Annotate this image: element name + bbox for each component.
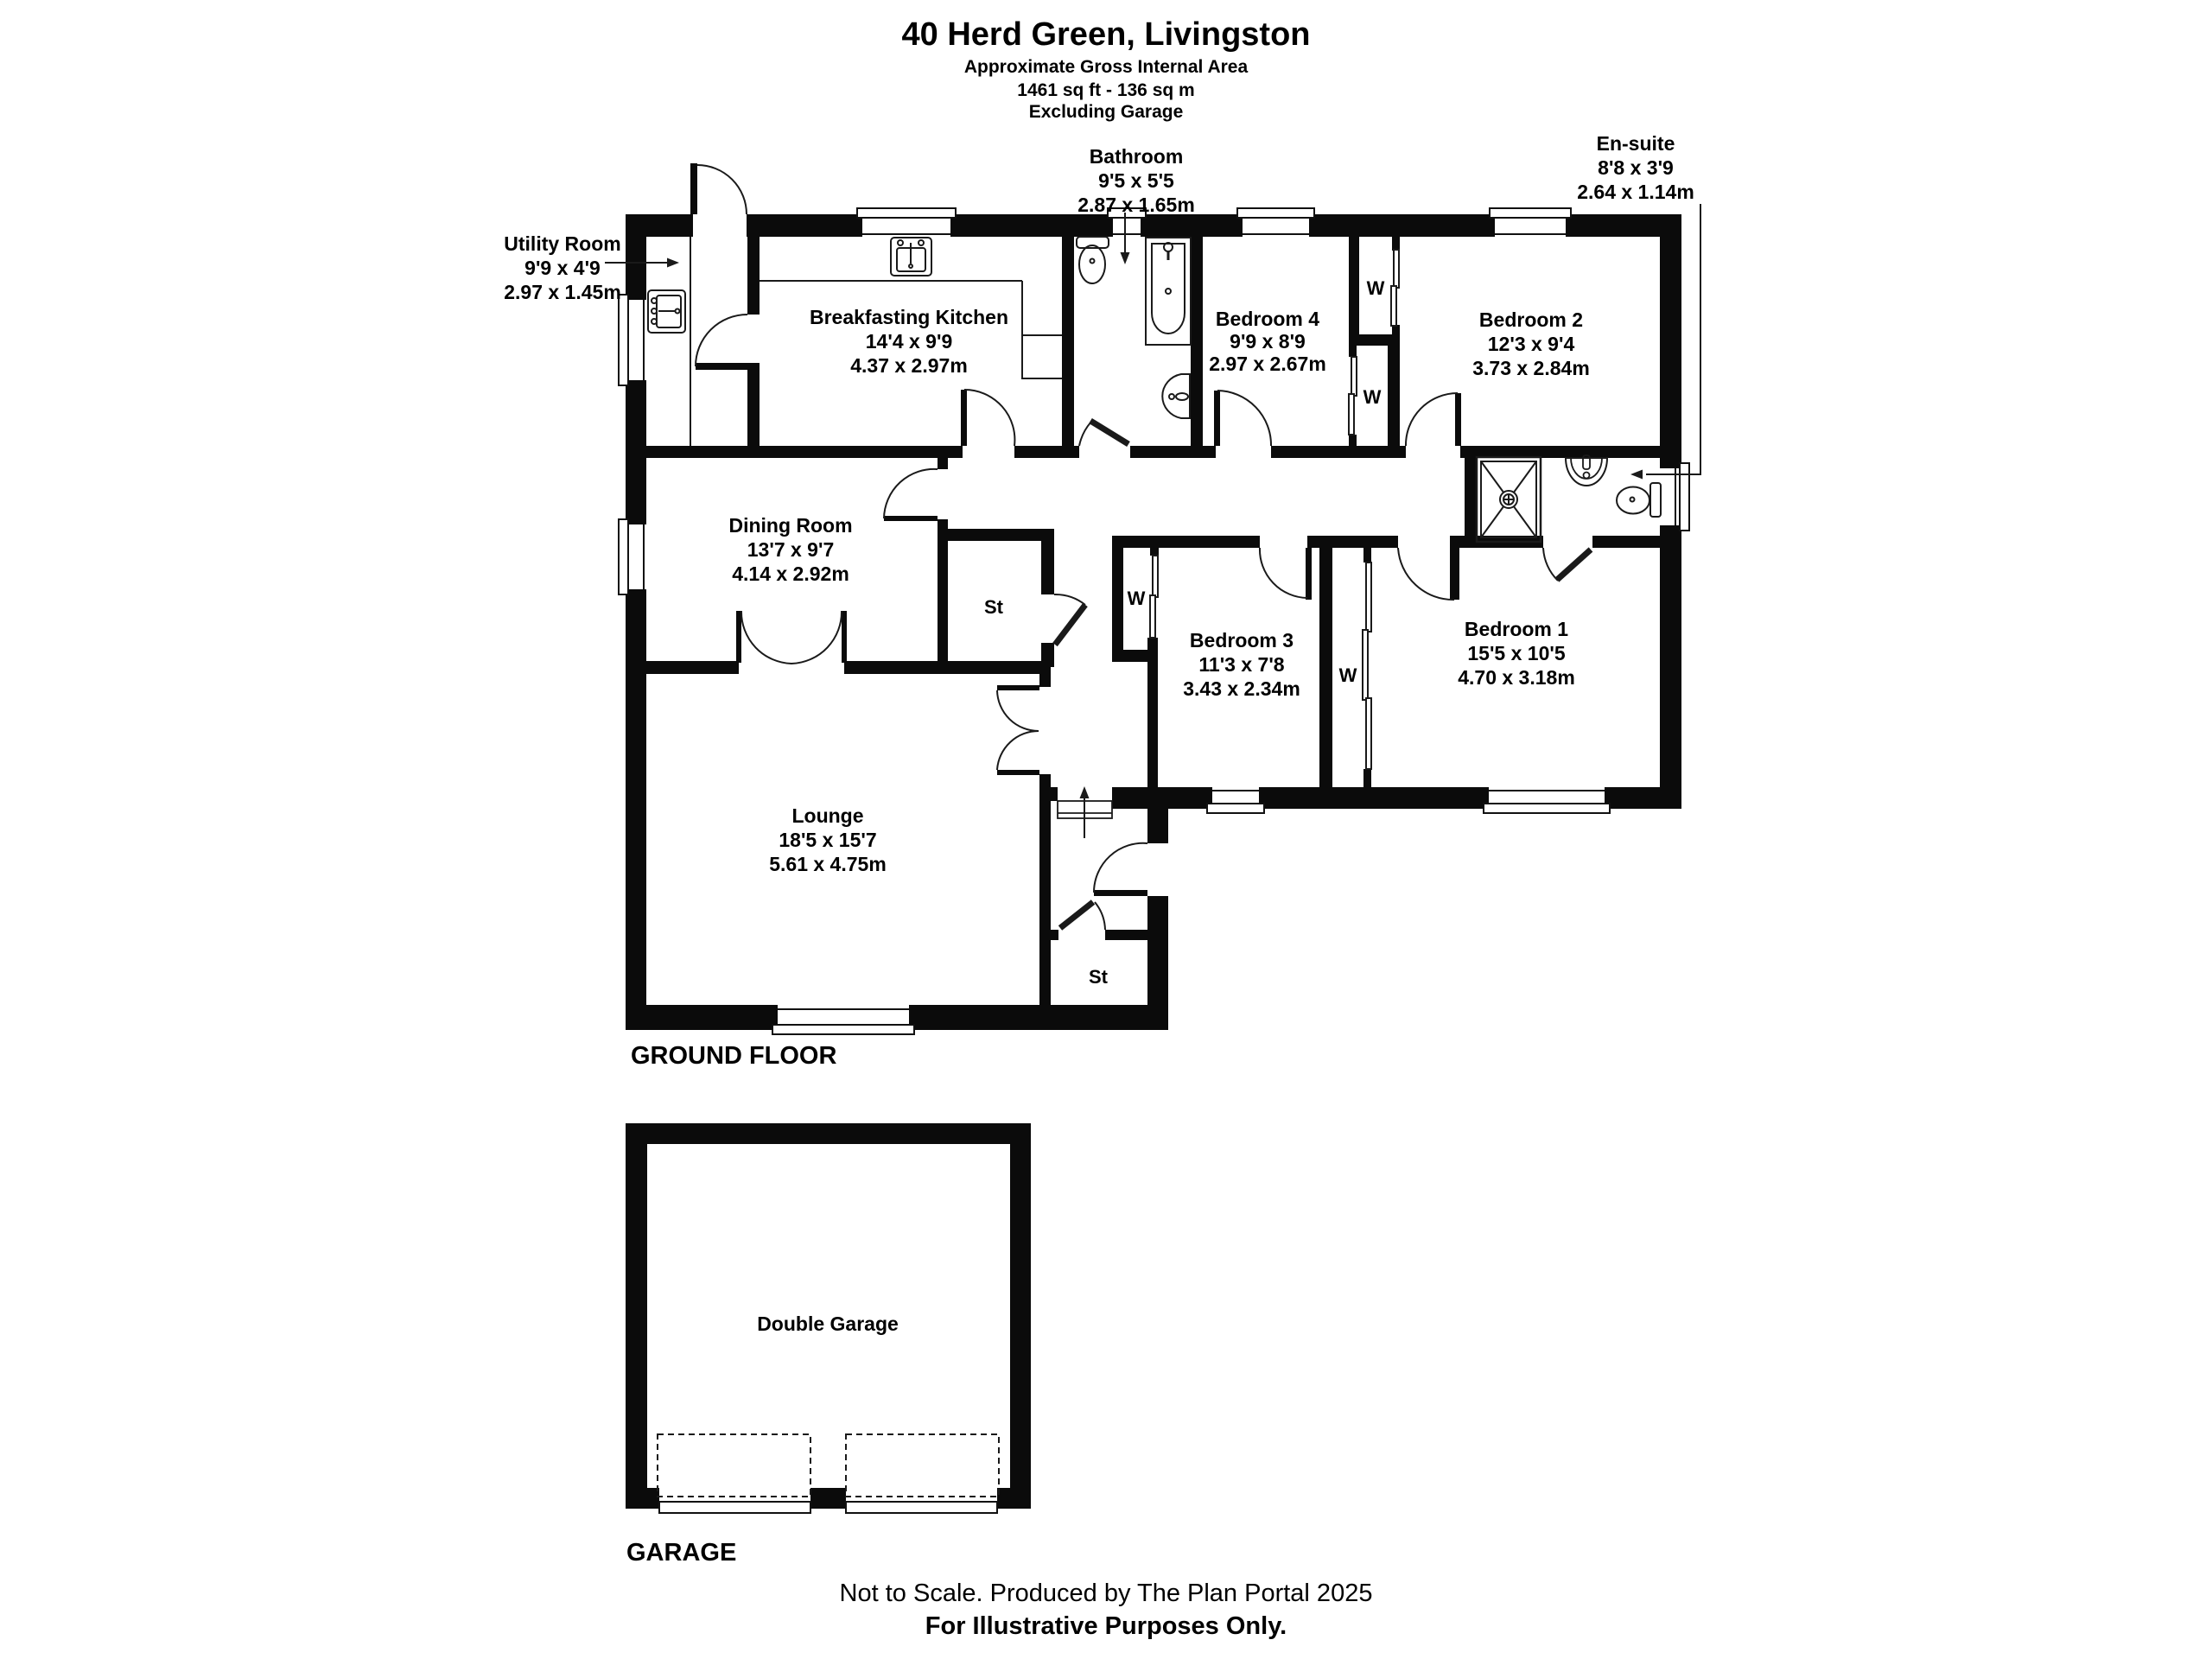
svg-text:GARAGE: GARAGE (626, 1539, 736, 1567)
svg-text:15'5 x 10'5: 15'5 x 10'5 (1467, 642, 1565, 664)
svg-text:12'3 x 9'4: 12'3 x 9'4 (1488, 333, 1575, 355)
svg-text:Bathroom: Bathroom (1090, 145, 1184, 168)
svg-text:9'9 x 4'9: 9'9 x 4'9 (524, 257, 601, 279)
svg-text:2.97 x 2.67m: 2.97 x 2.67m (1209, 353, 1326, 375)
svg-text:Bedroom 4: Bedroom 4 (1216, 308, 1319, 330)
svg-text:2.87 x 1.65m: 2.87 x 1.65m (1077, 194, 1195, 216)
svg-text:18'5 x 15'7: 18'5 x 15'7 (779, 829, 876, 851)
svg-text:For Illustrative Purposes Only: For Illustrative Purposes Only. (925, 1612, 1287, 1640)
svg-text:W: W (1128, 588, 1146, 609)
svg-text:5.61 x 4.75m: 5.61 x 4.75m (769, 853, 887, 875)
svg-text:Utility Room: Utility Room (504, 232, 620, 255)
svg-text:W: W (1367, 277, 1385, 299)
svg-text:Approximate Gross Internal Are: Approximate Gross Internal Area (964, 57, 1249, 77)
svg-text:Excluding Garage: Excluding Garage (1029, 102, 1184, 122)
svg-text:Breakfasting Kitchen: Breakfasting Kitchen (810, 306, 1008, 328)
svg-text:4.70 x 3.18m: 4.70 x 3.18m (1458, 666, 1575, 689)
svg-text:4.14 x 2.92m: 4.14 x 2.92m (732, 563, 849, 585)
svg-text:13'7 x 9'7: 13'7 x 9'7 (747, 538, 834, 561)
svg-text:3.73 x 2.84m: 3.73 x 2.84m (1472, 357, 1590, 379)
svg-text:2.64 x 1.14m: 2.64 x 1.14m (1577, 181, 1694, 203)
svg-text:GROUND FLOOR: GROUND FLOOR (631, 1042, 836, 1070)
svg-text:Bedroom 3: Bedroom 3 (1190, 629, 1294, 652)
svg-text:Lounge: Lounge (791, 804, 863, 827)
svg-text:St: St (984, 596, 1004, 618)
svg-text:8'8 x 3'9: 8'8 x 3'9 (1598, 156, 1674, 179)
svg-text:2.97 x 1.45m: 2.97 x 1.45m (504, 281, 621, 303)
svg-text:W: W (1339, 664, 1357, 686)
svg-text:St: St (1089, 966, 1109, 988)
svg-text:40 Herd Green, Livingston: 40 Herd Green, Livingston (902, 16, 1311, 53)
svg-text:W: W (1363, 386, 1382, 408)
svg-text:Double Garage: Double Garage (757, 1313, 899, 1335)
svg-text:9'5 x 5'5: 9'5 x 5'5 (1098, 169, 1174, 192)
svg-text:14'4 x 9'9: 14'4 x 9'9 (866, 330, 952, 353)
svg-text:4.37 x 2.97m: 4.37 x 2.97m (850, 354, 968, 377)
svg-text:En-suite: En-suite (1597, 132, 1675, 155)
svg-text:Dining Room: Dining Room (728, 514, 852, 537)
svg-text:Not to Scale. Produced by The: Not to Scale. Produced by The Plan Porta… (840, 1580, 1373, 1607)
svg-text:1461 sq ft - 136 sq m: 1461 sq ft - 136 sq m (1017, 80, 1194, 100)
svg-text:Bedroom 1: Bedroom 1 (1465, 618, 1568, 640)
svg-text:11'3 x 7'8: 11'3 x 7'8 (1198, 653, 1284, 676)
svg-text:3.43 x 2.34m: 3.43 x 2.34m (1183, 677, 1300, 700)
svg-text:9'9 x 8'9: 9'9 x 8'9 (1230, 330, 1306, 353)
svg-text:Bedroom 2: Bedroom 2 (1479, 308, 1583, 331)
